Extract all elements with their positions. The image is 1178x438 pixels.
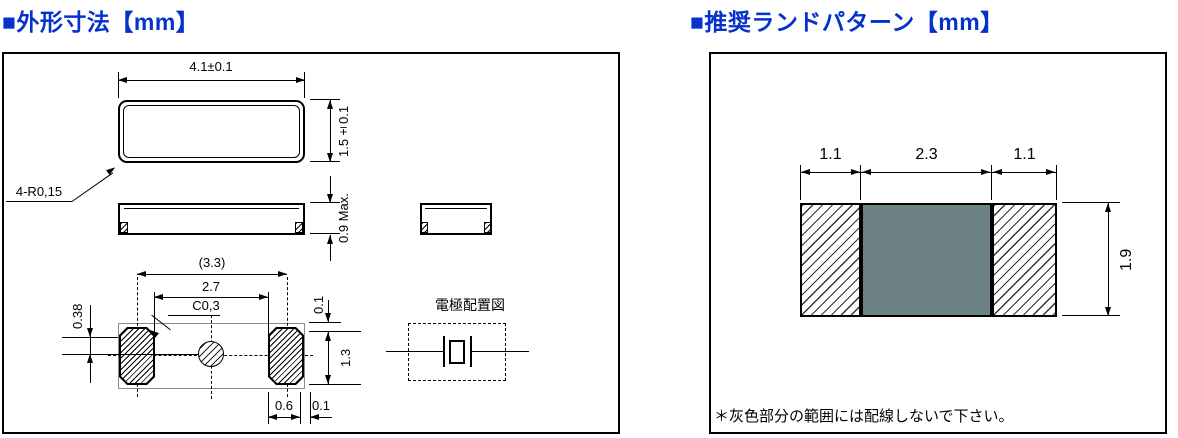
outline-dimensions-title: ■外形寸法【mm】: [2, 3, 199, 37]
bottom-view-pad-right: [268, 327, 304, 385]
dim-extension-line: [268, 292, 269, 338]
dim-label-pad-pitch: (3.3): [136, 255, 288, 270]
package-top-view-inner-line: [123, 105, 300, 158]
dim-label-pad-width: 0.6: [266, 398, 302, 413]
arrowhead-down: [87, 328, 93, 337]
dim-label-top-gap: 0.1: [311, 289, 326, 321]
dim-label-pad-height: 1.3: [338, 336, 353, 380]
arrowhead-up: [327, 100, 333, 109]
arrowhead-right: [296, 77, 305, 83]
arrowhead-down: [1105, 307, 1111, 316]
dim-label-pad-gap: 2.7: [154, 279, 268, 294]
dim-extension-line: [309, 331, 361, 332]
dim-label-side-gap: 0.1: [304, 398, 338, 413]
dim-line: [118, 80, 305, 81]
crystal-symbol-resonator: [449, 340, 465, 364]
dim-extension-line: [1062, 202, 1120, 203]
dim-line: [90, 305, 91, 383]
dim-extension-line: [309, 322, 341, 323]
arrowhead-right: [851, 169, 860, 175]
crystal-symbol-plate-left: [443, 336, 445, 367]
arrowhead-left: [993, 169, 1002, 175]
bottom-view-pad-right-hatch: [270, 329, 302, 383]
side-view-pad-right: [295, 222, 303, 233]
arrowhead-right: [278, 271, 287, 277]
arrowhead-left: [310, 414, 319, 420]
dim-extension-line: [1062, 315, 1120, 316]
arrowhead-right: [1046, 169, 1055, 175]
dim-label-body-width: 4.1±0.1: [136, 59, 286, 74]
dim-label-max-height: 0.9 Max.: [336, 185, 351, 251]
lid-seam-line: [425, 208, 487, 209]
outline-panel: [2, 52, 620, 434]
crystal-symbol-lead-right: [471, 351, 529, 352]
bottom-view-pad-left-hatch: [121, 329, 153, 383]
arrowhead-right: [259, 294, 268, 300]
land-pad-right: [992, 203, 1057, 317]
dim-extension-line: [860, 165, 861, 200]
dim-line: [137, 274, 287, 275]
leader-underline: [6, 201, 72, 202]
arrowhead-right: [981, 169, 990, 175]
dim-line: [861, 172, 991, 173]
dim-extension-line: [309, 384, 361, 385]
arrowhead-left: [268, 414, 277, 420]
bottom-view-pad-left: [119, 327, 155, 385]
keepout-area: [861, 203, 992, 317]
keepout-note: ＊灰色部分の範囲には配線しないで下さい。: [714, 405, 1014, 426]
electrode-diagram-label: 電極配置図: [415, 295, 525, 315]
arrowhead-up: [325, 332, 331, 341]
arrowhead-up: [87, 354, 93, 363]
arrowhead-left: [154, 294, 163, 300]
dim-extension-line: [304, 72, 305, 98]
arrowhead-left: [801, 169, 810, 175]
corner-radius-note: 4-R0,15: [6, 184, 72, 199]
land-pattern-title: ■推奨ランドパターン【mm】: [690, 3, 1004, 37]
arrowhead-right: [291, 414, 300, 420]
dim-line: [1108, 203, 1109, 316]
datasheet-drawing: ■外形寸法【mm】 ■推奨ランドパターン【mm】 4.1±0.1 1.5±0.1…: [0, 0, 1178, 438]
arrowhead-left: [137, 271, 146, 277]
end-view-pad-right: [484, 222, 491, 233]
dim-label-right-pad-width: 1.1: [992, 146, 1057, 164]
end-view-pad-left: [421, 222, 428, 233]
arrowhead-up: [1105, 203, 1111, 212]
dim-extension-line: [118, 72, 119, 98]
arrowhead-left: [118, 77, 127, 83]
dim-extension-line: [1056, 165, 1057, 200]
dim-label-center-width: 2.3: [861, 146, 992, 164]
arrowhead-down: [327, 194, 333, 203]
dim-label-left-pad-width: 1.1: [800, 146, 861, 164]
crystal-symbol-lead-left: [386, 351, 443, 352]
dim-extension-line: [991, 165, 992, 200]
chamfer-note: C0,3: [176, 298, 236, 313]
arrowhead-up: [327, 235, 333, 244]
arrowhead-down: [325, 375, 331, 384]
arrowhead-left: [862, 169, 871, 175]
dim-label-land-height: 1.9: [1118, 230, 1136, 290]
leader-underline: [168, 315, 220, 316]
dim-extension-line: [62, 354, 198, 355]
dim-label-mark-offset: 0.38: [70, 294, 85, 338]
side-view-pad-left: [120, 222, 128, 233]
index-mark-circle: [198, 341, 224, 367]
lid-seam-line: [124, 208, 299, 209]
dim-label-body-height: 1.5±0.1: [336, 96, 351, 166]
crystal-symbol-plate-right: [470, 336, 472, 367]
land-pad-left: [800, 203, 861, 317]
arrowhead-down: [327, 153, 333, 162]
